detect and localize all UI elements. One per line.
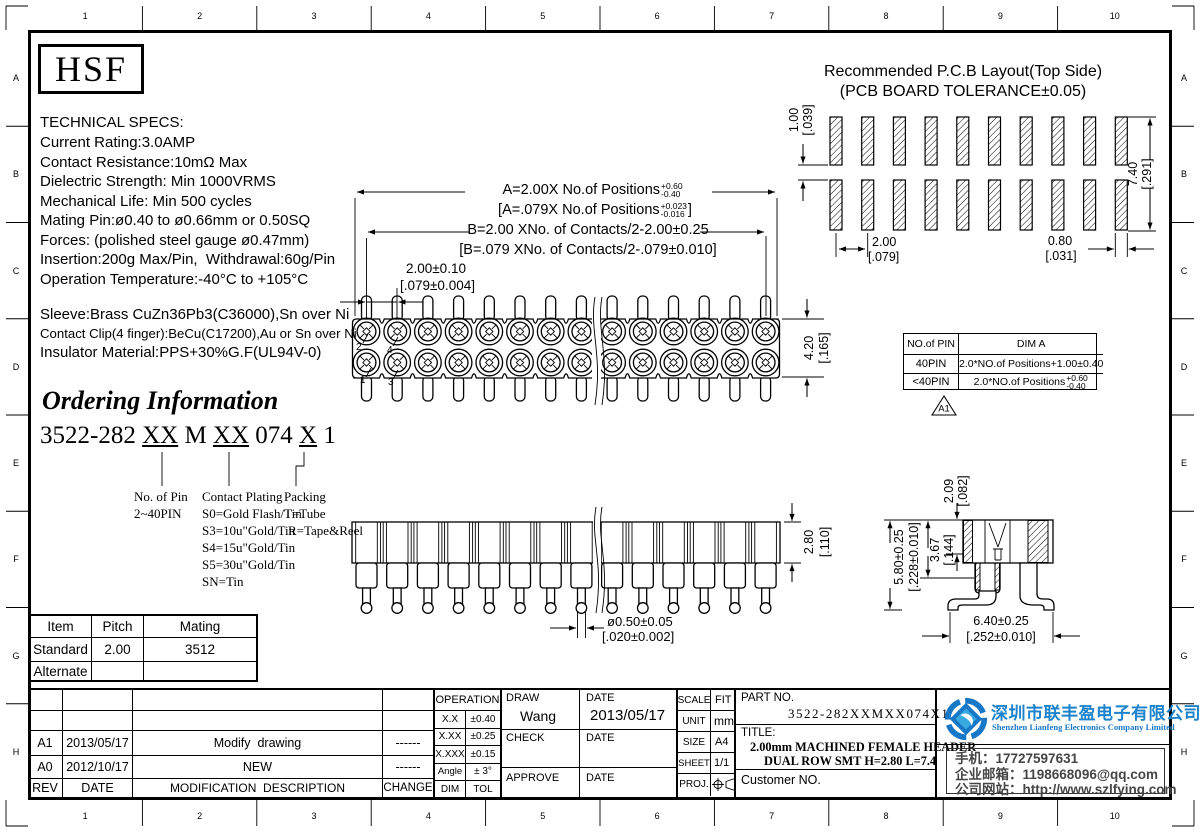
scale-value: FIT (715, 694, 732, 706)
drawing-info-block: SCALE FIT UNIT mm SIZE A4 SHEET 1/1 PROJ… (676, 690, 734, 799)
ruler-label: A (13, 73, 19, 83)
ordering-title: Ordering Information (42, 386, 278, 416)
pin-table-dim-text: 2.0*NO.of Positions (974, 376, 1066, 388)
part-block: PART NO. 3522-282XXMXX074X1 TITLE: 2.00m… (734, 690, 935, 799)
tol-val-angle: ± 3° (466, 763, 500, 780)
ruler-label: 1 (83, 11, 88, 21)
rev-a1: A1 (28, 730, 63, 755)
ruler-label: 8 (883, 11, 888, 21)
company-website: 公司网站：http://www.szlfying.com (955, 782, 1164, 798)
ruler-label: C (13, 266, 20, 276)
legend-packing-option: T=Tube (284, 506, 326, 522)
ruler-label: 8 (883, 811, 888, 821)
pin-table-header-pin: NO.of PIN (904, 334, 959, 354)
pcb-gap-mm: 1.00 (787, 108, 801, 132)
size-label: SIZE (678, 732, 711, 752)
mating-header-item: Item (30, 616, 92, 637)
approve-cell: APPROVE (502, 768, 580, 797)
ruler-label: E (13, 458, 19, 468)
dim-bodyh-inch: [.110] (818, 527, 832, 557)
rev-header-desc: MODIFICATION DESCRIPTION (133, 778, 383, 797)
approve-label: APPROVE (506, 772, 559, 784)
ordering-code-pin: XX (142, 422, 178, 449)
part-no-value: 3522-282XXMXX074X1 (788, 706, 949, 722)
dim-pitch-inch: [.079±0.004] (400, 278, 475, 293)
approval-draw-row: DRAW Wang DATE 2013/05/17 (502, 690, 676, 730)
rev-header-rev: REV (28, 778, 63, 797)
tol-val-xxxx: ±0.15 (466, 745, 500, 763)
dim-b-mm: B=2.00 XNo. of Contacts/2-2.00±0.25 (467, 222, 708, 238)
ordering-code: 3522-282 XX M XX 074 X 1 (40, 422, 336, 450)
dim-tail-mm: ø0.50±0.05 (607, 614, 673, 629)
dim-640-mm: 6.40±0.25 (973, 614, 1029, 628)
ruler-label: 6 (655, 811, 660, 821)
customer-row: Customer NO. (736, 770, 935, 797)
pin-dim-table: NO.of PIN DIM A 40PIN 2.0*NO.of Position… (903, 333, 1097, 390)
tol-dim-xx: X.X (435, 710, 466, 728)
tol-dim-xxx: X.XX (435, 728, 466, 746)
tolerance-title: OPERATION (435, 690, 500, 710)
mating-standard-pitch: 2.00 (92, 637, 144, 661)
bracket: ] (688, 202, 692, 218)
ruler-label: 10 (1110, 11, 1120, 21)
legend-pin-label: No. of Pin (134, 489, 188, 505)
mating-table: Item Pitch Mating Standard 2.00 3512 Alt… (28, 614, 258, 682)
hsf-logo-text: HSF (55, 48, 127, 90)
scale-row: SCALE FIT (678, 690, 734, 711)
check-cell: CHECK (502, 730, 580, 767)
tol-dim-label: DIM (435, 780, 466, 800)
pin-table-header-dim: DIM A (959, 334, 1103, 354)
pin-table-dim-tol: +0.60-0.40 (1066, 374, 1088, 390)
dim-a-mm-text: A=2.00X No.of Positions (502, 182, 660, 198)
legend-packing-option: R=Tape&Reel (288, 523, 363, 539)
unit-label: UNIT (678, 711, 711, 731)
legend-plating-label: Contact Plating (202, 489, 283, 505)
tech-specs-title: TECHNICAL SPECS: (40, 113, 184, 133)
dim-pitch-mm: 2.00±0.10 (406, 261, 466, 276)
company-email: 企业邮箱：1198668096@qq.com (955, 767, 1164, 783)
unit-value: mm (714, 714, 734, 728)
rev-a0-desc: NEW (133, 755, 383, 778)
part-title-label: TITLE: (741, 727, 776, 739)
dim-209-mm: 2.09 (942, 479, 956, 503)
rev-header-change: CHANGE (383, 778, 433, 797)
pin-number-4: 4 (387, 345, 393, 356)
ruler-label: 4 (426, 811, 431, 821)
tol-dim-xxxx: X.XXX (435, 745, 466, 763)
company-logo (943, 696, 989, 742)
dim-a-in-text: [A=.079X No.of Positions (498, 202, 660, 218)
rev-a0: A0 (28, 755, 63, 778)
projection-symbol (712, 777, 736, 792)
ruler-label: 1 (83, 811, 88, 821)
ruler-label: 7 (769, 811, 774, 821)
pcb-gap-inch: [.039] (801, 104, 815, 135)
ruler-label: 3 (311, 811, 316, 821)
dim-a-in-tol: +0.023-0.016 (661, 202, 687, 218)
ruler-label: 2 (197, 11, 202, 21)
ordering-code-plating: XX (213, 422, 249, 449)
title-row: TITLE: 2.00mm MACHINED FEMALE HEADER DUA… (736, 725, 935, 770)
rev-empty (28, 690, 63, 710)
dim-bodyh-mm: 2.80 (802, 530, 816, 554)
mating-header-mating: Mating (144, 616, 256, 637)
rev-empty (383, 710, 433, 730)
material-insulator: Insulator Material:PPS+30%G.F(UL94V-0) (40, 344, 321, 361)
tol-bot: -0.40 (661, 190, 683, 198)
dim-a-mm: A=2.00X No.of Positions+0.60-0.40 (502, 182, 683, 198)
pcb-title-1: Recommended P.C.B Layout(Top Side) (824, 63, 1102, 81)
title-block: A1 2013/05/17 Modify drawing ------ A0 2… (28, 688, 1172, 797)
tech-specs-line: Contact Resistance:10mΩ Max (40, 153, 247, 173)
ruler-label: G (1180, 651, 1187, 661)
mating-row-alternate: Alternate (30, 661, 92, 680)
pin-number-1: 1 (360, 375, 366, 386)
company-name-cn: 深圳市联丰盈电子有限公司 (991, 699, 1200, 724)
tolerance-table: OPERATION X.X ±0.40 X.XX ±0.25 X.XXX ±0.… (433, 690, 500, 799)
hsf-logo: HSF (38, 44, 144, 94)
pcb-pitch-inch: [.079] (868, 250, 899, 264)
tol-bot: -0.016 (661, 210, 687, 218)
ruler-label: 5 (540, 11, 545, 21)
rev-a1-change: ------ (383, 730, 433, 755)
draw-cell: DRAW Wang (502, 690, 580, 729)
dim-209-inch: [.082] (956, 475, 970, 506)
check-label: CHECK (506, 732, 545, 744)
ruler-label: E (1181, 458, 1187, 468)
tech-specs-line: Mechanical Life: Min 500 cycles (40, 192, 252, 212)
rev-empty (133, 710, 383, 730)
draw-date-value: 2013/05/17 (590, 707, 665, 724)
material-contact-clip: Contact Clip(4 finger):BeCu(C17200),Au o… (40, 326, 357, 341)
proj-row: PROJ. (678, 774, 734, 796)
mating-alternate-pitch (92, 661, 144, 680)
engineering-drawing-sheet: HSF TECHNICAL SPECS: Current Rating:3.0A… (0, 0, 1200, 832)
pin-table-40pin: 40PIN (904, 354, 959, 373)
ruler-label: G (12, 651, 19, 661)
dim-640-inch: [.252±0.010] (966, 630, 1035, 644)
ordering-code-packing: X (299, 422, 317, 449)
revision-table: A1 2013/05/17 Modify drawing ------ A0 2… (28, 690, 433, 797)
dim-height-mm: 4.20 (802, 336, 816, 360)
rev-empty (28, 710, 63, 730)
ruler-label: 4 (426, 11, 431, 21)
rev-a0-date: 2012/10/17 (63, 755, 133, 778)
legend-plating-option: S4=15u"Gold/Tin (202, 540, 295, 556)
rev-empty (133, 690, 383, 710)
tech-specs-line: Current Rating:3.0AMP (40, 133, 195, 153)
rev-a1-date: 2013/05/17 (63, 730, 133, 755)
pcb-pad-mm: 0.80 (1048, 234, 1072, 248)
pcb-title-2: (PCB BOARD TOLERANCE±0.05) (840, 83, 1086, 101)
company-block: 深圳市联丰盈电子有限公司 Shenzhen Lianfeng Electroni… (935, 690, 1172, 799)
dim-tail-inch: [.020±0.002] (602, 629, 674, 644)
part-no-row: PART NO. 3522-282XXMXX074X1 (736, 690, 935, 725)
tech-specs-line: Insertion:200g Max/Pin, Withdrawal:60g/P… (40, 250, 335, 270)
tech-specs-line: Mating Pin:ø0.40 to ø0.66mm or 0.50SQ (40, 211, 310, 231)
dim-a-inch: [A=.079X No.of Positions+0.023-0.016] (498, 202, 692, 218)
legend-pin-range: 2~40PIN (134, 506, 181, 522)
scale-label: SCALE (678, 690, 711, 710)
ruler-label: D (13, 362, 20, 372)
rev-empty (63, 690, 133, 710)
pin-table-lt40pin-dim: 2.0*NO.of Positions+0.60-0.40 (959, 373, 1103, 390)
ruler-label: 2 (197, 811, 202, 821)
ruler-label: A (1181, 73, 1187, 83)
company-divider (937, 744, 1172, 745)
pin-number-3: 3 (388, 377, 394, 388)
pin-number-2: 2 (356, 342, 362, 353)
proj-label: PROJ. (678, 774, 711, 796)
mating-row-standard: Standard (30, 637, 92, 661)
approval-approve-row: APPROVE DATE (502, 768, 676, 797)
dim-580-mm: 5.80±0.25 (892, 529, 906, 585)
customer-no-label: Customer NO. (741, 773, 821, 787)
legend-plating-option: S5=30u"Gold/Tin (202, 557, 295, 573)
part-title-line2: DUAL ROW SMT H=2.80 L=7.4 (764, 754, 936, 769)
ruler-label: 6 (655, 11, 660, 21)
tol-val-label: TOL (466, 780, 500, 800)
approve-date-label: DATE (586, 772, 615, 784)
ordering-code-part: 3522-282 (40, 422, 142, 449)
part-no-label: PART NO. (741, 692, 794, 704)
legend-plating-option: SN=Tin (202, 574, 244, 590)
ordering-code-part: 1 (317, 422, 336, 449)
dim-367-inch: [.144] (942, 534, 956, 565)
ruler-label: 9 (998, 11, 1003, 21)
pcb-pad-inch: [.031] (1045, 249, 1076, 263)
sheet-row: SHEET 1/1 (678, 753, 734, 774)
pin-table-40pin-dim: 2.0*NO.of Positions+1.00±0.40 (959, 354, 1103, 373)
rev-header-date: DATE (63, 778, 133, 797)
dim-a-mm-tol: +0.60-0.40 (661, 182, 683, 198)
revision-flag-label: A1 (938, 404, 950, 415)
draw-name: Wang (520, 708, 556, 724)
ruler-label: C (1181, 266, 1188, 276)
unit-row: UNIT mm (678, 711, 734, 732)
ruler-label: 10 (1110, 811, 1120, 821)
tech-specs-line: Operation Temperature:-40°C to +105°C (40, 270, 308, 290)
ruler-label: 3 (311, 11, 316, 21)
approval-check-row: CHECK DATE (502, 730, 676, 768)
dim-367-mm: 3.67 (928, 538, 942, 562)
sheet-value: 1/1 (714, 757, 729, 769)
tol-bot: -0.40 (1066, 382, 1088, 390)
ruler-label: D (1181, 362, 1188, 372)
material-sleeve: Sleeve:Brass CuZn36Pb3(C36000),Sn over N… (40, 306, 349, 323)
tech-specs-line: Dielectric Strength: Min 1000VRMS (40, 172, 276, 192)
ordering-code-part: M (178, 422, 213, 449)
mating-header-pitch: Pitch (92, 616, 144, 637)
dim-height-inch: [.165] (817, 332, 831, 363)
ruler-label: F (1181, 554, 1187, 564)
ruler-label: F (13, 554, 19, 564)
ruler-label: H (1181, 747, 1188, 757)
pcb-span-inch: [.291] (1140, 158, 1154, 189)
rev-empty (383, 690, 433, 710)
tol-val-xx: ±0.40 (466, 710, 500, 728)
tol-dim-angle: Angle (435, 763, 466, 780)
rev-empty (63, 710, 133, 730)
legend-plating-option: S3=10u"Gold/Tin (202, 523, 295, 539)
mating-standard-mating: 3512 (144, 637, 256, 661)
pin-table-lt40pin: <40PIN (904, 373, 959, 390)
pcb-pitch-mm: 2.00 (872, 235, 896, 249)
legend-packing-label: Packing (284, 489, 326, 505)
ruler-label: 9 (998, 811, 1003, 821)
draw-label: DRAW (506, 692, 539, 704)
size-value: A4 (715, 736, 728, 748)
ruler-label: 5 (540, 811, 545, 821)
draw-date-label: DATE (586, 692, 615, 704)
dim-580-inch: [.228±0.010] (907, 522, 921, 591)
company-name-en: Shenzhen Lianfeng Electronics Company Li… (992, 722, 1175, 732)
ruler-label: B (1181, 169, 1187, 179)
ruler-label: H (13, 747, 20, 757)
mating-alternate-mating (144, 661, 256, 680)
check-date-label: DATE (586, 732, 615, 744)
rev-a0-change: ------ (383, 755, 433, 778)
ruler-label: 7 (769, 11, 774, 21)
dim-b-inch: [B=.079 XNo. of Contacts/2-.079±0.010] (459, 242, 716, 258)
rev-a1-desc: Modify drawing (133, 730, 383, 755)
approval-block: DRAW Wang DATE 2013/05/17 CHECK DATE APP… (500, 690, 676, 799)
pcb-span-mm: 7.40 (1126, 162, 1140, 186)
ordering-code-part: 074 (249, 422, 299, 449)
tol-val-xxx: ±0.25 (466, 728, 500, 746)
tech-specs-line: Forces: (polished steel gauge ø0.47mm) (40, 231, 309, 251)
ruler-label: B (13, 169, 19, 179)
size-row: SIZE A4 (678, 732, 734, 753)
company-contact-box: 手机：17727597631 企业邮箱：1198668096@qq.com 公司… (946, 748, 1165, 794)
sheet-label: SHEET (678, 753, 711, 773)
company-phone: 手机：17727597631 (955, 751, 1164, 767)
